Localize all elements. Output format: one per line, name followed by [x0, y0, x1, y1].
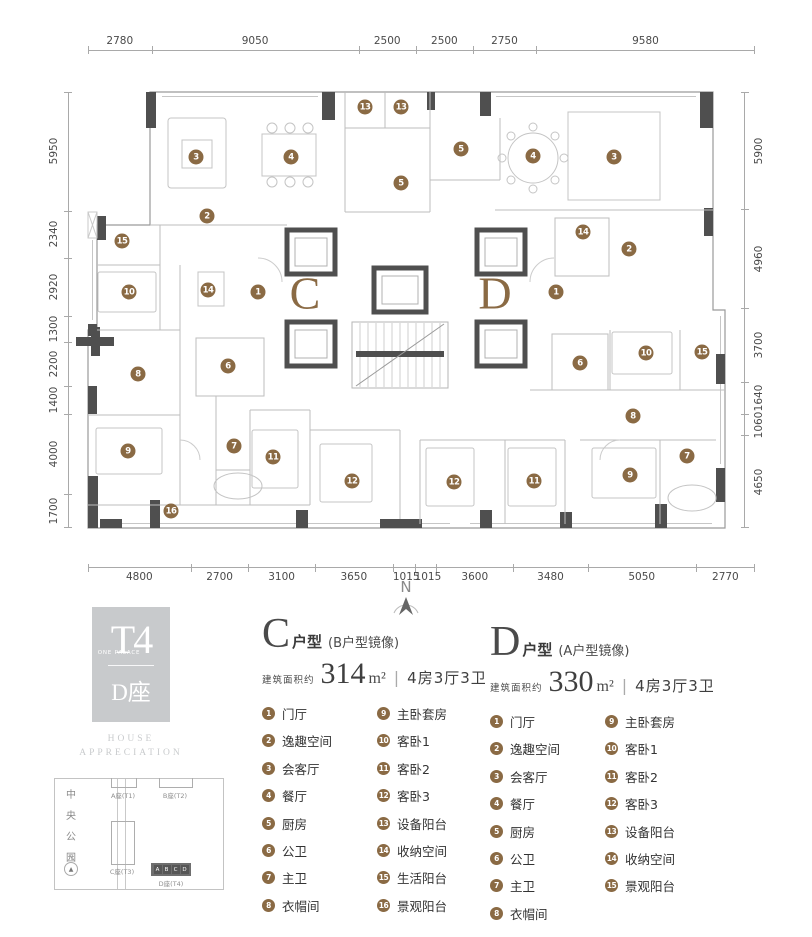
- staircase: [352, 322, 448, 388]
- room-name: 主卫: [282, 868, 307, 887]
- room-name: 公卫: [282, 841, 307, 860]
- unit-d-letter: D: [490, 624, 520, 662]
- dimension-value: 5950: [48, 138, 60, 165]
- spec-divider: |: [622, 676, 627, 695]
- dimension-segment: 2920: [52, 258, 69, 316]
- dimension-value: 4960: [753, 245, 765, 272]
- building-d-units: ABCD: [154, 865, 189, 874]
- room-name: 餐厅: [282, 786, 307, 805]
- room-name: 公卫: [510, 849, 535, 868]
- dimension-segment: 4800: [88, 567, 191, 584]
- tagline-line2: APPRECIATION: [52, 746, 210, 760]
- dimension-segment: 1700: [52, 494, 69, 528]
- unit-c-mirror-note: (B户型镜像): [328, 632, 399, 651]
- unit-c-letter: C: [262, 616, 290, 654]
- legend-item: 4餐厅: [262, 782, 373, 809]
- building-b-outline: [159, 778, 193, 788]
- legend-item: 5厨房: [490, 817, 601, 844]
- unit-c-type: 户型: [292, 631, 322, 652]
- block-name: D座: [111, 673, 151, 707]
- dimension-segment: 9580: [536, 34, 755, 51]
- compass-arrow-icon: [391, 595, 421, 617]
- building-a-outline: [111, 778, 137, 788]
- central-park-label: 中央公园: [63, 786, 79, 864]
- room-name: 餐厅: [510, 794, 535, 813]
- room-name: 门厅: [510, 712, 535, 731]
- room-marker-c-12: 12: [345, 474, 360, 489]
- room-marker-c-6: 6: [221, 359, 236, 374]
- legend-item: 3会客厅: [490, 763, 601, 790]
- unit-d-title: D 户型 (A户型镜像): [490, 624, 716, 662]
- room-name: 主卧套房: [397, 704, 447, 723]
- legend-item: 12客卧3: [605, 790, 716, 817]
- dimension-value: 4000: [48, 441, 60, 468]
- dimension-segment: 2500: [416, 34, 473, 51]
- legend-item: 10客卧1: [605, 735, 716, 762]
- legend-item: 15景观阳台: [605, 872, 716, 899]
- dimension-segment: 3100: [248, 567, 314, 584]
- room-name: 客卧3: [397, 786, 430, 805]
- dimension-segment: 5900: [744, 92, 761, 209]
- room-marker-d-15: 15: [695, 345, 710, 360]
- room-name: 客卧3: [625, 794, 658, 813]
- room-number-badge: 14: [377, 844, 390, 857]
- unit-c-legend: 1门厅2逸趣空间3会客厅4餐厅5厨房6公卫7主卫8衣帽间9主卧套房10客卧111…: [262, 700, 488, 919]
- room-name: 会客厅: [510, 767, 548, 786]
- dimension-value: 3480: [513, 571, 587, 583]
- site-unit-b: B: [163, 865, 171, 874]
- room-marker-c-15: 15: [115, 234, 130, 249]
- floorplan-brochure-page: 1234567891011121314151612345678910111213…: [0, 0, 812, 937]
- area-label: 建筑面积约: [490, 680, 543, 694]
- area-unit: m²: [597, 678, 614, 696]
- room-name: 衣帽间: [282, 896, 320, 915]
- unit-d-spec: 4房3厅3卫: [635, 675, 715, 696]
- park-label-char: 公: [63, 828, 79, 843]
- dimension-value: 9580: [536, 35, 755, 47]
- dimension-segment: 3650: [315, 567, 393, 584]
- dimension-segment: 2500: [359, 34, 416, 51]
- room-marker-c-11: 11: [266, 450, 281, 465]
- room-name: 客卧1: [625, 739, 658, 758]
- room-marker-d-3: 3: [607, 150, 622, 165]
- dimension-segment: 2200: [52, 342, 69, 386]
- dimension-value: 2770: [696, 571, 755, 583]
- dimension-value: 5050: [588, 571, 696, 583]
- building-a-label: A座(T1): [101, 790, 145, 800]
- room-marker-d-13: 13: [394, 100, 409, 115]
- legend-column: 9主卧套房10客卧111客卧212客卧313设备阳台14收纳空间15景观阳台: [605, 708, 716, 927]
- project-subtitle: ONE PALACE: [98, 650, 141, 656]
- room-name: 衣帽间: [510, 904, 548, 923]
- dimension-value: 2700: [191, 571, 249, 583]
- room-marker-d-9: 9: [623, 468, 638, 483]
- room-number-badge: 15: [377, 871, 390, 884]
- room-marker-d-8: 8: [626, 409, 641, 424]
- room-number-badge: 11: [605, 770, 618, 783]
- room-marker-c-2: 2: [200, 209, 215, 224]
- dimension-value: 3650: [315, 571, 393, 583]
- plan-unit-c-letter: C: [290, 267, 321, 320]
- room-number-badge: 5: [490, 825, 503, 838]
- room-name: 收纳空间: [397, 841, 447, 860]
- unit-d-mirror-note: (A户型镜像): [558, 640, 629, 659]
- dimension-segment: 4000: [52, 414, 69, 494]
- legend-item: 5厨房: [262, 809, 373, 836]
- tagline: HOUSE APPRECIATION: [52, 732, 210, 761]
- legend-item: 13设备阳台: [377, 809, 488, 836]
- dimension-value: 1640: [753, 385, 765, 412]
- room-name: 主卧套房: [625, 712, 675, 731]
- park-label-char: 央: [63, 807, 79, 822]
- project-logo: T4 ONE PALACE D座: [92, 607, 170, 722]
- logo-divider: [108, 665, 154, 666]
- room-number-badge: 2: [262, 734, 275, 747]
- room-number-badge: 9: [605, 715, 618, 728]
- dimension-value: 2200: [48, 351, 60, 378]
- floor-plan-drawing: [0, 0, 812, 600]
- room-number-badge: 16: [377, 899, 390, 912]
- legend-item: 13设备阳台: [605, 817, 716, 844]
- north-label: N: [386, 580, 426, 595]
- site-unit-d: D: [181, 865, 189, 874]
- room-marker-d-5: 5: [454, 142, 469, 157]
- dimension-segment: 4960: [744, 209, 761, 308]
- room-marker-c-16: 16: [164, 504, 179, 519]
- site-unit-c: C: [172, 865, 180, 874]
- room-number-badge: 6: [262, 844, 275, 857]
- dimension-segment: 5050: [588, 567, 696, 584]
- room-name: 景观阳台: [397, 896, 447, 915]
- legend-item: 7主卫: [490, 872, 601, 899]
- room-name: 会客厅: [282, 759, 320, 778]
- dimension-segment: 1640: [744, 382, 761, 415]
- room-marker-c-3: 3: [189, 150, 204, 165]
- room-marker-d-7: 7: [680, 449, 695, 464]
- unit-c-info: C 户型 (B户型镜像) 建筑面积约 314 m² | 4房3厅3卫 1门厅2逸…: [262, 616, 488, 919]
- dimension-value: 2750: [473, 35, 536, 47]
- dimension-value: 2920: [48, 274, 60, 301]
- plan-unit-d-letter: D: [478, 267, 511, 320]
- room-number-badge: 1: [262, 707, 275, 720]
- dimension-segment: 1400: [52, 386, 69, 414]
- site-plan: 中央公园 N ▲ ABCD A座(T1) B座(T2) C座(T3) D座(T4…: [54, 778, 224, 890]
- room-name: 逸趣空间: [510, 739, 560, 758]
- hatch-boxes: [88, 212, 97, 238]
- dimension-value: 2340: [48, 221, 60, 248]
- dimension-value: 4650: [753, 468, 765, 495]
- unit-d-area: 建筑面积约 330 m² | 4房3厅3卫: [490, 668, 716, 696]
- room-name: 景观阳台: [625, 876, 675, 895]
- legend-item: 2逸趣空间: [262, 727, 373, 754]
- building-d-label: D座(T4): [143, 878, 199, 888]
- dimension-value: 3600: [436, 571, 513, 583]
- room-name: 收纳空间: [625, 849, 675, 868]
- dimension-value: 2500: [359, 35, 416, 47]
- legend-column: 9主卧套房10客卧111客卧212客卧313设备阳台14收纳空间15生活阳台16…: [377, 700, 488, 919]
- legend-item: 9主卧套房: [605, 708, 716, 735]
- building-b-label: B座(T2): [153, 790, 197, 800]
- legend-column: 1门厅2逸趣空间3会客厅4餐厅5厨房6公卫7主卫8衣帽间: [262, 700, 373, 919]
- dimension-segment: 3480: [513, 567, 587, 584]
- room-marker-c-9: 9: [121, 444, 136, 459]
- dimension-value: 1300: [48, 316, 60, 343]
- room-marker-c-13: 13: [358, 100, 373, 115]
- room-number-badge: 8: [262, 899, 275, 912]
- room-name: 逸趣空间: [282, 731, 332, 750]
- room-number-badge: 12: [377, 789, 390, 802]
- room-marker-c-14: 14: [201, 283, 216, 298]
- dimension-value: 1060: [753, 412, 765, 439]
- dimensions-left: 59502340292013002200140040001700: [52, 92, 69, 528]
- dimension-segment: 2750: [473, 34, 536, 51]
- legend-item: 11客卧2: [605, 763, 716, 790]
- dimension-value: 2500: [416, 35, 473, 47]
- room-name: 生活阳台: [397, 868, 447, 887]
- dimension-segment: 9050: [152, 34, 359, 51]
- room-marker-c-10: 10: [122, 285, 137, 300]
- room-name: 主卫: [510, 876, 535, 895]
- unit-c-title: C 户型 (B户型镜像): [262, 616, 488, 654]
- unit-c-area: 建筑面积约 314 m² | 4房3厅3卫: [262, 660, 488, 688]
- room-marker-d-11: 11: [527, 474, 542, 489]
- dimension-value: 1400: [48, 387, 60, 414]
- room-number-badge: 2: [490, 742, 503, 755]
- room-number-badge: 11: [377, 762, 390, 775]
- legend-item: 6公卫: [262, 837, 373, 864]
- room-number-badge: 8: [490, 907, 503, 920]
- room-number-badge: 3: [490, 770, 503, 783]
- unit-d-type: 户型: [522, 639, 552, 660]
- legend-item: 14收纳空间: [377, 837, 488, 864]
- dimension-value: 3100: [248, 571, 314, 583]
- legend-item: 11客卧2: [377, 755, 488, 782]
- dimension-segment: 5950: [52, 92, 69, 211]
- dimension-value: 2780: [88, 35, 152, 47]
- room-name: 厨房: [282, 814, 307, 833]
- legend-item: 10客卧1: [377, 727, 488, 754]
- legend-item: 2逸趣空间: [490, 735, 601, 762]
- legend-item: 1门厅: [490, 708, 601, 735]
- dimension-segment: 2780: [88, 34, 152, 51]
- room-number-badge: 6: [490, 852, 503, 865]
- legend-item: 9主卧套房: [377, 700, 488, 727]
- room-number-badge: 1: [490, 715, 503, 728]
- room-marker-d-14: 14: [576, 225, 591, 240]
- room-marker-c-5: 5: [394, 176, 409, 191]
- room-name: 设备阳台: [397, 814, 447, 833]
- room-number-badge: 9: [377, 707, 390, 720]
- legend-item: 7主卫: [262, 864, 373, 891]
- room-marker-c-4: 4: [284, 150, 299, 165]
- room-marker-d-2: 2: [622, 242, 637, 257]
- spec-divider: |: [394, 668, 399, 687]
- legend-column: 1门厅2逸趣空间3会客厅4餐厅5厨房6公卫7主卫8衣帽间: [490, 708, 601, 927]
- room-number-badge: 13: [605, 825, 618, 838]
- legend-item: 8衣帽间: [490, 900, 601, 927]
- room-number-badge: 14: [605, 852, 618, 865]
- room-number-badge: 13: [377, 817, 390, 830]
- site-compass: N ▲: [64, 855, 78, 876]
- dimensions-right: 590049603700164010604650: [744, 92, 761, 528]
- legend-item: 8衣帽间: [262, 892, 373, 919]
- dimension-value: 5900: [753, 137, 765, 164]
- room-number-badge: 10: [377, 734, 390, 747]
- room-marker-c-1: 1: [251, 285, 266, 300]
- dimension-segment: 3700: [744, 308, 761, 382]
- park-label-char: 中: [63, 786, 79, 801]
- room-name: 客卧2: [397, 759, 430, 778]
- legend-item: 1门厅: [262, 700, 373, 727]
- room-marker-d-4: 4: [526, 149, 541, 164]
- unit-c-spec: 4房3厅3卫: [407, 667, 487, 688]
- legend-item: 15生活阳台: [377, 864, 488, 891]
- room-name: 设备阳台: [625, 822, 675, 841]
- room-number-badge: 5: [262, 817, 275, 830]
- dimension-segment: 2340: [52, 211, 69, 258]
- legend-item: 14收纳空间: [605, 845, 716, 872]
- site-unit-a: A: [154, 865, 162, 874]
- legend-item: 4餐厅: [490, 790, 601, 817]
- area-value: 314: [321, 660, 366, 687]
- room-marker-c-8: 8: [131, 367, 146, 382]
- north-compass: N: [386, 580, 426, 621]
- dimension-segment: 1300: [52, 316, 69, 342]
- room-number-badge: 4: [490, 797, 503, 810]
- dimension-segment: 2700: [191, 567, 249, 584]
- room-name: 客卧2: [625, 767, 658, 786]
- legend-item: 12客卧3: [377, 782, 488, 809]
- legend-item: 6公卫: [490, 845, 601, 872]
- area-unit: m²: [369, 670, 386, 688]
- dimension-segment: 4650: [744, 435, 761, 528]
- area-value: 330: [549, 668, 594, 695]
- dimension-value: 3700: [753, 332, 765, 359]
- room-number-badge: 12: [605, 797, 618, 810]
- room-name: 客卧1: [397, 731, 430, 750]
- dimension-segment: 1060: [744, 414, 761, 435]
- building-c-outline: [111, 821, 135, 865]
- site-compass-icon: ▲: [64, 862, 78, 876]
- room-name: 门厅: [282, 704, 307, 723]
- room-name: 厨房: [510, 822, 535, 841]
- dimension-value: 1700: [48, 498, 60, 525]
- tagline-line1: HOUSE: [52, 732, 210, 746]
- room-number-badge: 3: [262, 762, 275, 775]
- room-number-badge: 10: [605, 742, 618, 755]
- legend-item: 3会客厅: [262, 755, 373, 782]
- building-d-block: ABCD: [151, 863, 191, 876]
- unit-d-legend: 1门厅2逸趣空间3会客厅4餐厅5厨房6公卫7主卫8衣帽间9主卧套房10客卧111…: [490, 708, 716, 927]
- dimension-segment: 2770: [696, 567, 755, 584]
- dimensions-top: 278090502500250027509580: [88, 34, 755, 51]
- dimension-segment: 3600: [436, 567, 513, 584]
- room-number-badge: 7: [262, 871, 275, 884]
- legend-item: 16景观阳台: [377, 892, 488, 919]
- room-marker-c-7: 7: [227, 439, 242, 454]
- room-marker-d-1: 1: [549, 285, 564, 300]
- room-marker-d-10: 10: [639, 346, 654, 361]
- room-marker-d-12: 12: [447, 475, 462, 490]
- room-number-badge: 15: [605, 879, 618, 892]
- area-label: 建筑面积约: [262, 672, 315, 686]
- dimension-value: 9050: [152, 35, 359, 47]
- room-number-badge: 7: [490, 879, 503, 892]
- building-c-label: C座(T3): [99, 866, 145, 876]
- room-number-badge: 4: [262, 789, 275, 802]
- site-north-label: N: [64, 855, 78, 861]
- room-marker-d-6: 6: [573, 356, 588, 371]
- unit-d-info: D 户型 (A户型镜像) 建筑面积约 330 m² | 4房3厅3卫 1门厅2逸…: [490, 624, 716, 927]
- dimension-value: 4800: [88, 571, 191, 583]
